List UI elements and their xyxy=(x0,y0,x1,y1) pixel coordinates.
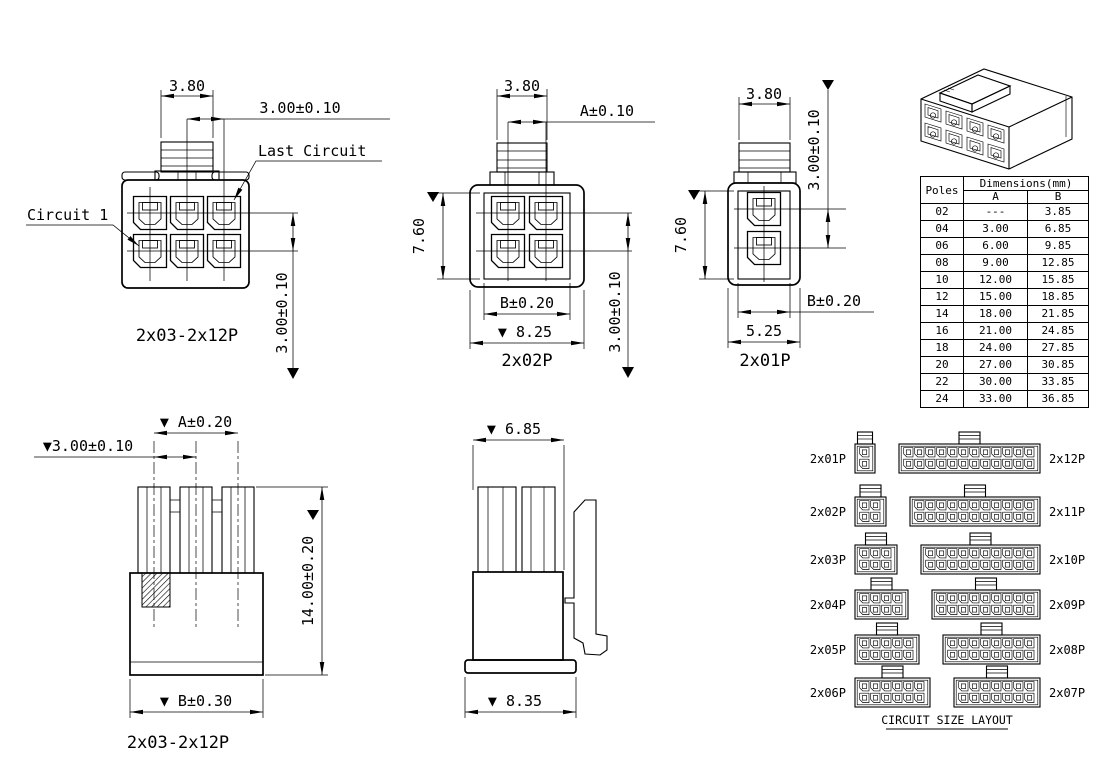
layout-connector-2x12P: 2x12P xyxy=(899,432,1085,473)
dim-pitch-right: 3.00±0.10 xyxy=(805,80,834,248)
dim-pitch-top: 3.00±0.10 xyxy=(187,99,390,119)
layout-connector-2x10P: 2x10P xyxy=(921,533,1085,574)
layout-label-2x04P: 2x04P xyxy=(810,598,846,612)
poles-row: 066.009.85 xyxy=(921,238,1089,255)
dim-b: ▼ B±0.30 xyxy=(130,679,263,718)
dim-height-14: 14.00±0.20 xyxy=(256,487,328,675)
layout-connector-2x02P: 2x02P xyxy=(810,485,886,526)
layout-connector-2x03P: 2x03P xyxy=(810,533,897,574)
poles-cell: 27.85 xyxy=(1028,340,1089,357)
dim-label: A±0.10 xyxy=(580,102,634,120)
base-flange xyxy=(465,660,576,673)
datum-triangle xyxy=(622,367,634,378)
poles-row: 1621.0024.85 xyxy=(921,323,1089,340)
layout-connector-2x09P: 2x09P xyxy=(932,578,1085,619)
poles-cell: 24.00 xyxy=(964,340,1028,357)
dim-pitch-right: 3.00±0.10 xyxy=(273,213,299,379)
circuit-size-layout: 2x01P2x12P2x02P2x11P2x03P2x10P2x04P2x09P… xyxy=(810,432,1085,729)
connector-datasheet-drawing: 3.80 3.00±0.10 Last Circuit Circuit 1 3.… xyxy=(0,0,1107,784)
poles-row: 1418.0021.85 xyxy=(921,306,1089,323)
datum-triangle xyxy=(307,510,319,520)
poles-cell: --- xyxy=(964,204,1028,221)
dim-label: 3.80 xyxy=(169,77,205,95)
housing-3d-silhouette xyxy=(921,69,1072,169)
poles-cell: 14 xyxy=(921,306,964,323)
label-last-circuit: Last Circuit xyxy=(234,142,382,200)
poles-row: 2433.0036.85 xyxy=(921,391,1089,408)
housing-body xyxy=(473,572,563,660)
corner-tab-left xyxy=(122,172,159,180)
poles-cell: 6.85 xyxy=(1028,221,1089,238)
poles-cell: 30.85 xyxy=(1028,357,1089,374)
dim-height-7-60: 7.60 xyxy=(672,190,734,279)
poles-dimensions-table: Poles Dimensions(mm) A B 02---3.85043.00… xyxy=(920,176,1089,408)
dim-label: ▼ A±0.20 xyxy=(160,413,232,431)
column-b-header: B xyxy=(1028,191,1089,204)
poles-cell: 16 xyxy=(921,323,964,340)
layout-label-2x08P: 2x08P xyxy=(1049,643,1085,657)
dim-a: ▼ A±0.20 xyxy=(154,413,238,433)
mating-latch xyxy=(734,143,796,183)
poles-cell: 18.00 xyxy=(964,306,1028,323)
dim-label: ▼ 8.25 xyxy=(498,323,552,341)
view-side: ▼ 6.85 ▼ 8.35 xyxy=(465,420,607,718)
poles-row: 1215.0018.85 xyxy=(921,289,1089,306)
dim-label: ▼ 8.35 xyxy=(488,692,542,710)
view-caption: 2x03-2x12P xyxy=(127,733,229,753)
poles-row: 1824.0027.85 xyxy=(921,340,1089,357)
layout-label-2x01P: 2x01P xyxy=(810,452,846,466)
poles-cell: 21.00 xyxy=(964,323,1028,340)
poles-cell: 18 xyxy=(921,340,964,357)
dim-label: 14.00±0.20 xyxy=(299,536,317,626)
layout-label-2x10P: 2x10P xyxy=(1049,553,1085,567)
dim-label: 3.80 xyxy=(504,77,540,95)
poles-cell: 04 xyxy=(921,221,964,238)
poles-row: 1012.0015.85 xyxy=(921,272,1089,289)
dim-latch-width: 3.80 xyxy=(497,77,547,140)
layout-label-2x05P: 2x05P xyxy=(810,643,846,657)
poles-cell: 36.85 xyxy=(1028,391,1089,408)
layout-connector-2x01P: 2x01P xyxy=(810,432,875,473)
wire-slots xyxy=(478,487,555,572)
poles-cell: 3.85 xyxy=(1028,204,1089,221)
view-caption: 2x03-2x12P xyxy=(136,326,238,346)
poles-cell: 12 xyxy=(921,289,964,306)
poles-cell: 12.85 xyxy=(1028,255,1089,272)
poles-cell: 20 xyxy=(921,357,964,374)
corner-tab-right xyxy=(212,172,249,180)
isometric-view xyxy=(921,69,1072,169)
dim-label: 3.00±0.10 xyxy=(259,99,340,117)
dim-overall-5-25: 5.25 xyxy=(728,288,800,348)
layout-connector-2x07P: 2x07P xyxy=(954,666,1085,707)
layout-connector-2x06P: 2x06P xyxy=(810,666,930,707)
column-a-header: A xyxy=(964,191,1028,204)
dim-label: B±0.20 xyxy=(500,294,554,312)
dim-label: ▼ 6.85 xyxy=(487,420,541,438)
poles-table-body: 02---3.85043.006.85066.009.85089.0012.85… xyxy=(921,204,1089,408)
poles-cell: 15.00 xyxy=(964,289,1028,306)
layout-label-2x11P: 2x11P xyxy=(1049,505,1085,519)
datum-triangle xyxy=(287,368,299,379)
leader-line xyxy=(234,161,382,200)
side-latch xyxy=(565,500,607,655)
poles-cell: 30.00 xyxy=(964,374,1028,391)
dim-label: 7.60 xyxy=(410,218,428,254)
view-front-2x01: 3.80 3.00±0.10 7.60 B±0.20 5.25 xyxy=(672,80,874,371)
view-caption: 2x01P xyxy=(739,351,790,371)
dim-label: ▼3.00±0.10 xyxy=(43,437,133,455)
poles-cell: 02 xyxy=(921,204,964,221)
dim-label: ▼ B±0.30 xyxy=(160,692,232,710)
layout-title: CIRCUIT SIZE LAYOUT xyxy=(881,713,1013,727)
poles-cell: 18.85 xyxy=(1028,289,1089,306)
poles-cell: 15.85 xyxy=(1028,272,1089,289)
poles-cell: 33.00 xyxy=(964,391,1028,408)
dim-base: ▼ 8.35 xyxy=(465,677,576,718)
dim-label: 7.60 xyxy=(672,217,690,253)
poles-cell: 08 xyxy=(921,255,964,272)
dim-latch-width: 3.80 xyxy=(739,85,790,140)
latch-3d xyxy=(940,75,1010,112)
layout-label-2x06P: 2x06P xyxy=(810,686,846,700)
poles-cell: 12.00 xyxy=(964,272,1028,289)
circuit-1-hatch xyxy=(142,573,170,607)
view-front-2x03: 3.80 3.00±0.10 Last Circuit Circuit 1 3.… xyxy=(26,77,390,379)
layout-connector-2x04P: 2x04P xyxy=(810,578,908,619)
dim-pitch-a: A±0.10 xyxy=(508,102,655,122)
dim-label: 3.00±0.10 xyxy=(805,109,823,190)
dim-b: B±0.20 xyxy=(484,283,570,320)
poles-cell: 24.85 xyxy=(1028,323,1089,340)
dimensions-group-header: Dimensions(mm) xyxy=(964,177,1089,191)
dim-depth: ▼ 6.85 xyxy=(473,420,564,570)
layout-connector-2x08P: 2x08P xyxy=(943,623,1085,664)
poles-cell: 27.00 xyxy=(964,357,1028,374)
layout-label-2x09P: 2x09P xyxy=(1049,598,1085,612)
dim-pitch: ▼3.00±0.10 xyxy=(34,437,196,457)
poles-row: 089.0012.85 xyxy=(921,255,1089,272)
poles-cell: 06 xyxy=(921,238,964,255)
top-right-edge xyxy=(1009,97,1072,127)
poles-cell: 6.00 xyxy=(964,238,1028,255)
dim-pitch-right: 3.00±0.10 xyxy=(606,213,634,378)
dim-b: B±0.20 xyxy=(738,283,874,318)
layout-connector-2x11P: 2x11P xyxy=(910,485,1085,526)
last-circuit-label: Last Circuit xyxy=(258,142,366,160)
layout-connector-2x05P: 2x05P xyxy=(810,623,919,664)
poles-cell: 21.85 xyxy=(1028,306,1089,323)
poles-cell: 10 xyxy=(921,272,964,289)
poles-cell: 22 xyxy=(921,374,964,391)
dim-label: 3.80 xyxy=(746,85,782,103)
dim-label: B±0.20 xyxy=(807,292,861,310)
datum-triangle xyxy=(822,80,834,90)
housing-body xyxy=(470,185,584,287)
view-rear: ▼ A±0.20 ▼3.00±0.10 14.00±0.20 ▼ B±0.30 … xyxy=(34,413,328,753)
poles-cell: 9.00 xyxy=(964,255,1028,272)
layout-label-2x03P: 2x03P xyxy=(810,553,846,567)
dim-label: 3.00±0.10 xyxy=(273,272,291,353)
layout-label-2x12P: 2x12P xyxy=(1049,452,1085,466)
poles-cell: 33.85 xyxy=(1028,374,1089,391)
datum-triangle xyxy=(427,192,439,202)
poles-row: 043.006.85 xyxy=(921,221,1089,238)
poles-row: 2230.0033.85 xyxy=(921,374,1089,391)
datum-triangle xyxy=(688,190,700,200)
layout-label-2x07P: 2x07P xyxy=(1049,686,1085,700)
layout-connectors: 2x01P2x12P2x02P2x11P2x03P2x10P2x04P2x09P… xyxy=(810,432,1085,707)
poles-cell: 9.85 xyxy=(1028,238,1089,255)
poles-row: 2027.0030.85 xyxy=(921,357,1089,374)
poles-cell: 3.00 xyxy=(964,221,1028,238)
dim-label: 3.00±0.10 xyxy=(606,271,624,352)
poles-row: 02---3.85 xyxy=(921,204,1089,221)
circuit-1-label: Circuit 1 xyxy=(27,206,108,224)
view-front-2x02: 3.80 A±0.10 7.60 B±0.20 ▼ 8.25 xyxy=(410,77,655,378)
mating-latch xyxy=(490,143,554,185)
poles-column-header: Poles xyxy=(921,177,964,204)
view-caption: 2x02P xyxy=(501,351,552,371)
poles-cell: 24 xyxy=(921,391,964,408)
dim-label: 5.25 xyxy=(746,322,782,340)
layout-label-2x02P: 2x02P xyxy=(810,505,846,519)
